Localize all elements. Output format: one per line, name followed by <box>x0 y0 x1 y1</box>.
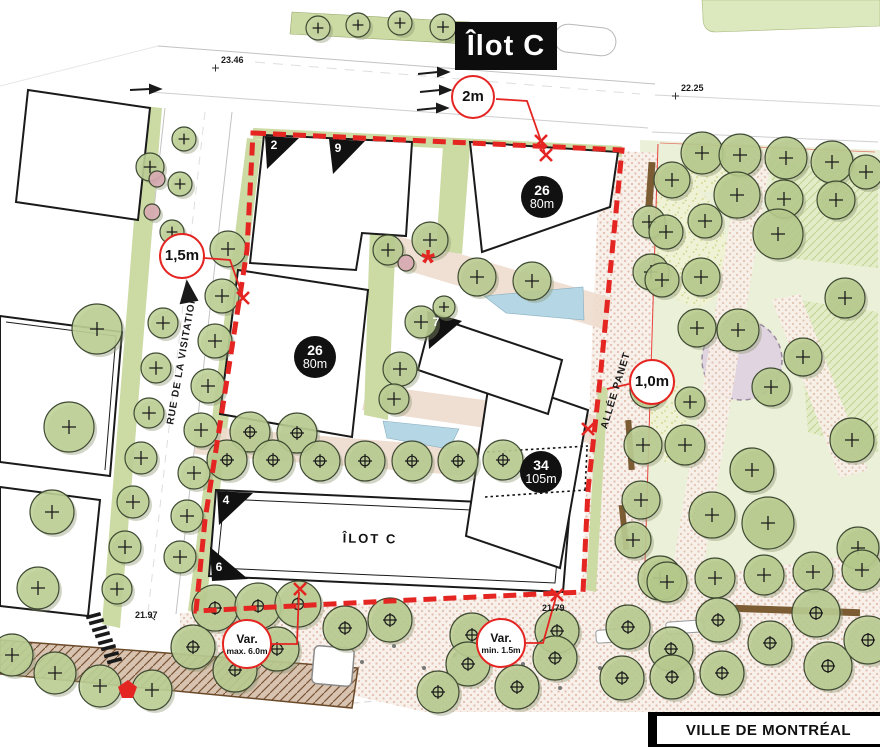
callout-1-5m-text: 1,5m <box>165 248 199 264</box>
badge3-floors: 34 <box>533 458 549 473</box>
plan-title: Îlot C <box>455 22 557 70</box>
callout-var-max: Var. max. 6.0m <box>222 619 272 669</box>
corner-number-2: 2 <box>266 138 282 152</box>
ville-de-montreal-title-block: VILLE DE MONTRÉAL <box>648 712 880 747</box>
tree-symbol <box>438 441 481 484</box>
badge1-height: 80m <box>530 198 554 211</box>
tree-symbol <box>168 172 195 199</box>
red-asterisk-marker: * <box>421 248 435 278</box>
callout-var-min: Var. min. 1.5m <box>476 618 526 668</box>
callout-var-min-line1: Var. <box>490 632 511 645</box>
tree-symbol <box>171 500 206 535</box>
building-west-1 <box>16 90 150 220</box>
tree-symbol <box>164 541 199 576</box>
height-badge-3: 34 105m <box>520 451 562 493</box>
height-badge-2: 26 80m <box>294 336 336 378</box>
badge3-height: 105m <box>525 473 556 486</box>
ilot-c-building-label: ÎLOT C <box>310 530 430 547</box>
site-plan: Îlot C 2m 1,5m 1,0m Var. max. 6.0m Var. … <box>0 0 880 747</box>
elevation-23-46: 23.46 <box>221 55 244 65</box>
height-badge-1: 26 80m <box>521 176 563 218</box>
tree-symbol <box>134 398 167 431</box>
callout-var-max-line2: max. 6.0m <box>226 646 267 656</box>
callout-1-5m: 1,5m <box>159 233 205 279</box>
corner-number-6: 6 <box>211 560 227 574</box>
callout-2m: 2m <box>451 75 495 119</box>
tree-symbol <box>141 353 174 386</box>
corner-number-7: 7 <box>428 315 444 329</box>
tree-symbol <box>172 127 199 154</box>
badge2-floors: 26 <box>307 343 323 358</box>
corner-number-4: 4 <box>218 493 234 507</box>
elevation-22-25: 22.25 <box>681 83 704 93</box>
corner-number-9: 9 <box>330 141 346 155</box>
badge1-floors: 26 <box>534 183 550 198</box>
tree-symbol <box>148 308 181 341</box>
callout-var-max-line1: Var. <box>236 633 257 646</box>
elevation-21-97: 21.97 <box>135 610 158 620</box>
callout-1-0m: 1,0m <box>629 359 675 405</box>
site-plan-drawing <box>0 0 880 747</box>
street-median-shapes <box>290 0 880 57</box>
badge2-height: 80m <box>303 358 327 371</box>
elevation-21-79: 21.79 <box>542 603 565 613</box>
callout-2m-text: 2m <box>462 89 484 105</box>
callout-var-min-line2: min. 1.5m <box>481 645 520 655</box>
callout-1-0m-text: 1,0m <box>635 374 669 390</box>
